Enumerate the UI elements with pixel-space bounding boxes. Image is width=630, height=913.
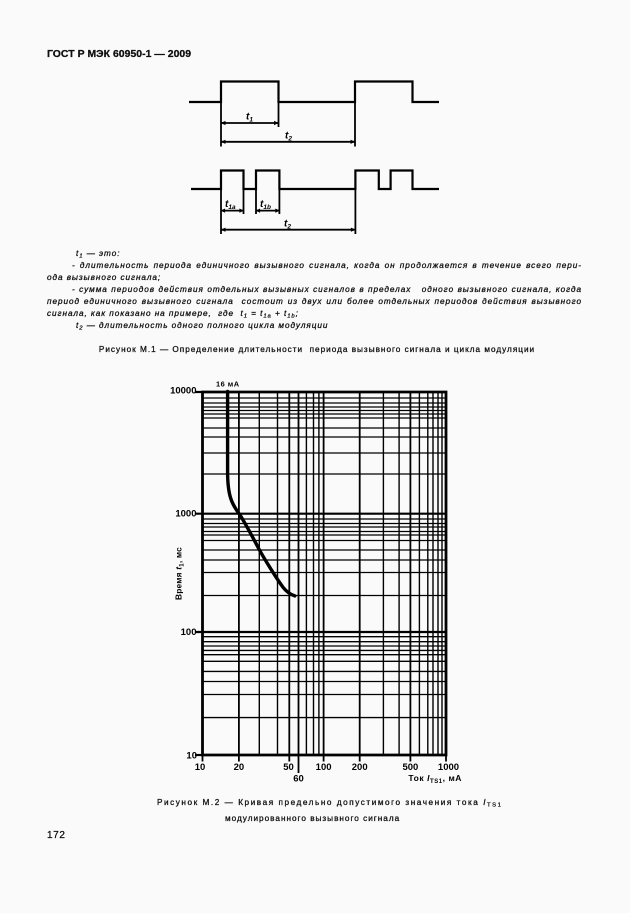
svg-text:100: 100 bbox=[316, 762, 332, 773]
svg-text:60: 60 bbox=[293, 774, 304, 785]
svg-text:20: 20 bbox=[234, 762, 245, 773]
svg-text:1000: 1000 bbox=[175, 509, 196, 520]
svg-text:1000: 1000 bbox=[438, 762, 459, 773]
svg-text:10: 10 bbox=[195, 762, 206, 773]
svg-text:50: 50 bbox=[283, 762, 294, 773]
svg-text:10: 10 bbox=[186, 750, 197, 761]
svg-text:200: 200 bbox=[352, 762, 368, 773]
svg-text:10000: 10000 bbox=[170, 385, 196, 396]
svg-text:Ток ITS1, мА: Ток ITS1, мА bbox=[408, 773, 462, 785]
svg-text:500: 500 bbox=[402, 762, 418, 773]
svg-text:100: 100 bbox=[181, 627, 197, 638]
svg-text:Время t1, мс: Время t1, мс bbox=[174, 547, 186, 600]
svg-text:16 мА: 16 мА bbox=[216, 380, 240, 389]
